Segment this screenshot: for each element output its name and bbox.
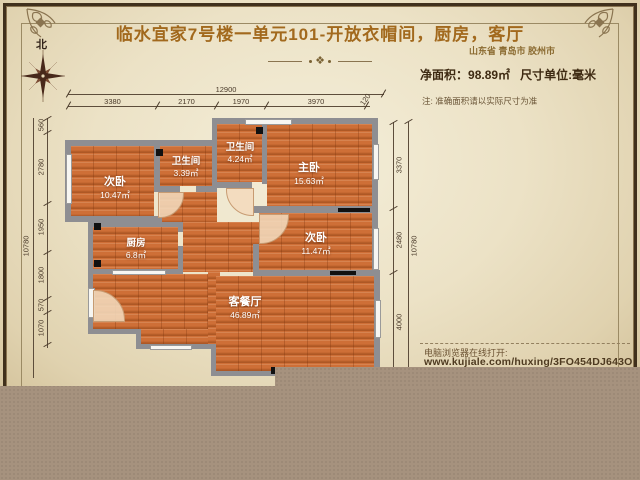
dim-left-seg: 1070 <box>37 320 46 337</box>
column-marker <box>94 223 101 230</box>
accuracy-note: 注: 准确面积请以实际尺寸为准 <box>422 95 537 107</box>
wall <box>88 329 141 334</box>
divider-line <box>268 61 302 62</box>
floor-living-step <box>141 329 211 344</box>
divider-dot <box>328 60 331 63</box>
dim-right-seg: 2480 <box>395 232 404 249</box>
wall <box>178 222 183 232</box>
wall <box>88 222 183 227</box>
dimension-line <box>68 94 384 95</box>
column-marker <box>256 127 263 134</box>
window <box>373 228 379 270</box>
window <box>66 154 72 204</box>
sliding-door-rail <box>330 271 356 275</box>
dim-top-total: 12900 <box>68 85 384 94</box>
wall <box>253 244 259 272</box>
floor-hall-center <box>183 222 259 272</box>
room-label-kitchen: 厨房 6.8㎡ <box>126 235 146 261</box>
floor-living-right <box>216 276 374 371</box>
room-label-bedroom-tl: 次卧 10.47㎡ <box>100 173 130 201</box>
dimension-line <box>33 118 34 378</box>
window <box>150 345 192 350</box>
compass-rose-icon <box>21 50 65 102</box>
column-marker <box>156 149 163 156</box>
wall <box>253 270 380 276</box>
page-title: 临水宜家7号楼一单元101-开放衣帽间，厨房，客厅 <box>60 20 580 45</box>
dim-top-seg: 1970 <box>216 97 266 106</box>
dim-right-seg: 4000 <box>395 314 404 331</box>
dim-left-seg: 1950 <box>37 219 46 236</box>
sliding-door-rail <box>338 208 370 212</box>
diamond-ornament-icon: ❖ <box>315 55 325 67</box>
wall <box>154 140 160 192</box>
dim-top-seg: 3380 <box>68 97 157 106</box>
footer-divider <box>420 343 630 344</box>
wall <box>212 118 378 124</box>
window <box>245 119 292 125</box>
corner-flourish-icon <box>577 7 615 41</box>
divider-line <box>338 61 372 62</box>
room-label-living: 客餐厅 46.89㎡ <box>229 293 262 321</box>
window <box>375 300 381 338</box>
net-area-label: 净面积： <box>420 68 468 82</box>
window <box>112 270 166 275</box>
dim-right-total: 10780 <box>410 236 419 257</box>
wall <box>65 140 217 146</box>
room-label-bedroom-right: 次卧 11.47㎡ <box>301 229 330 257</box>
desktop-cutout <box>275 367 640 387</box>
net-area-line: 净面积：98.89㎡ 尺寸单位:毫米 <box>420 66 596 83</box>
room-label-master: 主卧 15.63㎡ <box>294 159 324 187</box>
dim-top-seg: 2170 <box>157 97 216 106</box>
desktop-background: 临水宜家7号楼一单元101-开放衣帽间，厨房，客厅 山东省 青岛市 胶州市 ❖ … <box>0 0 640 480</box>
dim-left-total: 10780 <box>22 236 31 257</box>
dimension-line <box>47 118 48 348</box>
dim-right-seg: 3370 <box>395 157 404 174</box>
floorplan-sheet: 临水宜家7号楼一单元101-开放衣帽间，厨房，客厅 山东省 青岛市 胶州市 ❖ … <box>0 0 640 386</box>
dim-top-seg: 3970 <box>266 97 366 106</box>
window <box>373 144 379 180</box>
unit-label: 尺寸单位:毫米 <box>520 68 596 82</box>
dimension-line <box>68 106 370 107</box>
room-label-bath-small: 卫生间 3.39㎡ <box>172 153 201 179</box>
dim-left-seg: 2780 <box>37 159 46 176</box>
wall <box>212 118 217 192</box>
room-label-bath-top: 卫生间 4.24㎡ <box>226 139 255 165</box>
dim-left-seg: 1800 <box>37 267 46 284</box>
net-area-value: 98.89㎡ <box>468 68 510 82</box>
column-marker <box>94 260 101 267</box>
divider-dot <box>309 60 312 63</box>
